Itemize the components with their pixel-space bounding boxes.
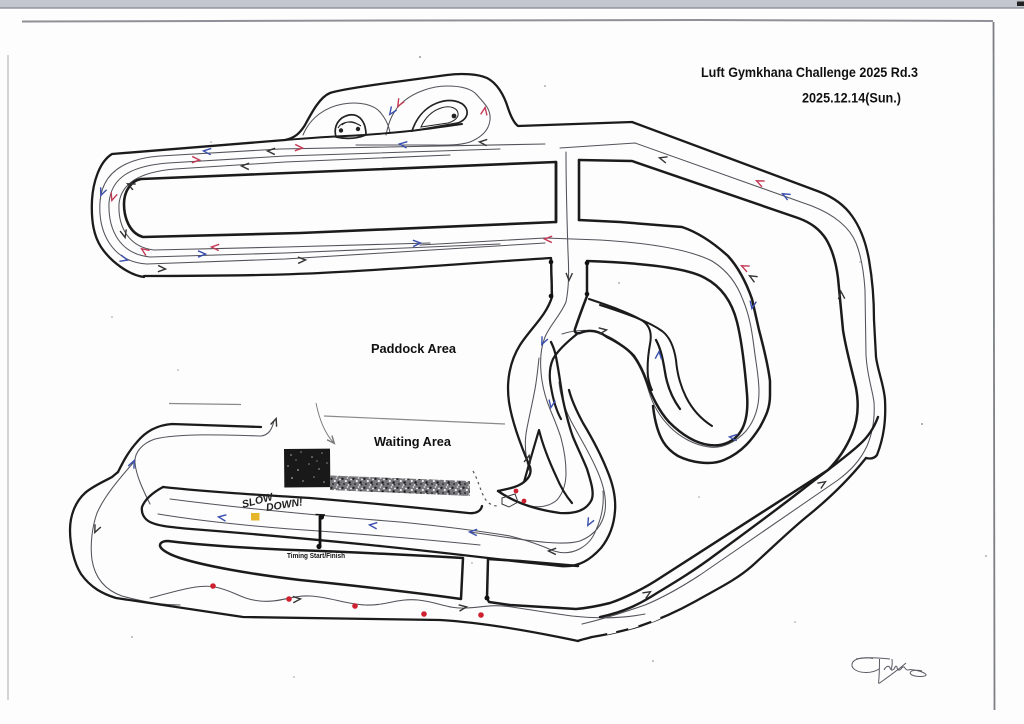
svg-text:2025.12.14(Sun.): 2025.12.14(Sun.) xyxy=(802,91,901,106)
svg-text:Waiting Area: Waiting Area xyxy=(374,435,452,449)
svg-text:Luft Gymkhana Challenge 2025 R: Luft Gymkhana Challenge 2025 Rd.3 xyxy=(701,65,918,80)
svg-text:Paddock Area: Paddock Area xyxy=(371,341,457,356)
svg-text:Timing Start/Finish: Timing Start/Finish xyxy=(287,553,345,560)
